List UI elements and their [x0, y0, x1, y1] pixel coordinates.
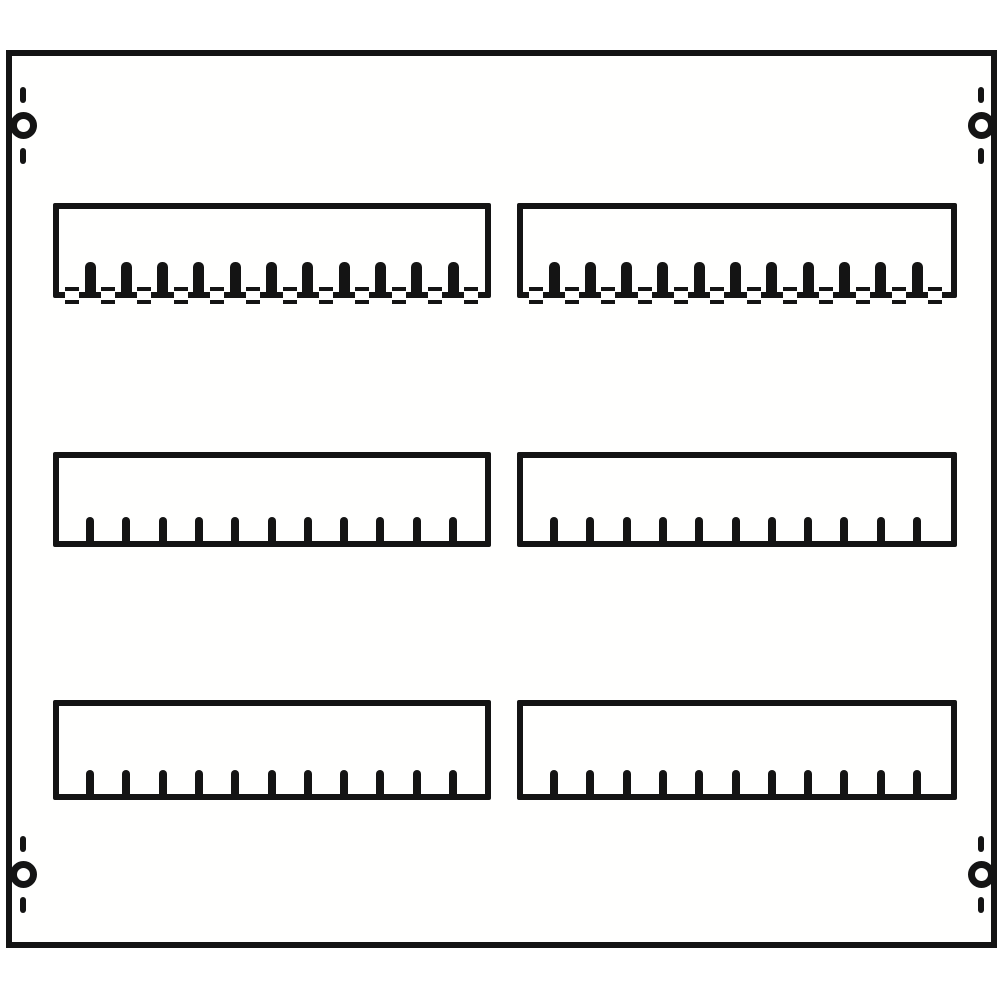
module-tooth	[657, 262, 668, 298]
module-tooth	[86, 517, 94, 547]
module-tooth	[230, 262, 241, 298]
module-tooth	[339, 262, 350, 298]
fixing-clip	[819, 287, 833, 304]
module-tooth	[413, 770, 421, 800]
module-tooth	[804, 517, 812, 547]
fixing-clip	[856, 287, 870, 304]
fixing-clip	[638, 287, 652, 304]
module-slot-r3c2	[517, 700, 957, 800]
hole-alignment-dash-bottom	[20, 897, 26, 913]
hole-alignment-dash-top	[978, 836, 984, 852]
fixing-clip	[428, 287, 442, 304]
module-tooth	[877, 517, 885, 547]
module-tooth	[840, 517, 848, 547]
module-tooth	[768, 517, 776, 547]
module-tooth	[159, 517, 167, 547]
panel-drawing	[0, 0, 1000, 1000]
hole-ring	[10, 112, 37, 139]
module-tooth	[550, 770, 558, 800]
module-tooth	[195, 517, 203, 547]
fixing-clip	[210, 287, 224, 304]
module-tooth	[159, 770, 167, 800]
fixing-clip	[355, 287, 369, 304]
module-tooth	[550, 517, 558, 547]
hole-alignment-dash-bottom	[978, 897, 984, 913]
module-tooth	[449, 770, 457, 800]
module-tooth	[913, 770, 921, 800]
module-tooth	[913, 517, 921, 547]
module-tooth	[766, 262, 777, 298]
module-tooth	[732, 517, 740, 547]
module-tooth	[549, 262, 560, 298]
fixing-clip	[319, 287, 333, 304]
module-tooth	[877, 770, 885, 800]
module-tooth	[448, 262, 459, 298]
hole-alignment-dash-top	[978, 87, 984, 103]
fixing-clip	[137, 287, 151, 304]
module-tooth	[875, 262, 886, 298]
hole-alignment-dash-bottom	[20, 148, 26, 164]
fixing-clip	[710, 287, 724, 304]
module-tooth	[694, 262, 705, 298]
module-tooth	[695, 517, 703, 547]
module-tooth	[411, 262, 422, 298]
module-tooth	[839, 262, 850, 298]
fixing-clip	[246, 287, 260, 304]
hole-alignment-dash-bottom	[978, 148, 984, 164]
module-tooth	[840, 770, 848, 800]
module-slot-r1c2	[517, 203, 957, 298]
module-tooth	[304, 517, 312, 547]
fixing-clip	[565, 287, 579, 304]
module-tooth	[804, 770, 812, 800]
fixing-clip	[392, 287, 406, 304]
module-tooth	[157, 262, 168, 298]
module-tooth	[623, 517, 631, 547]
module-tooth	[304, 770, 312, 800]
module-tooth	[193, 262, 204, 298]
module-tooth	[623, 770, 631, 800]
module-tooth	[912, 262, 923, 298]
module-tooth	[413, 517, 421, 547]
fixing-clip	[783, 287, 797, 304]
module-tooth	[376, 517, 384, 547]
fixing-clip	[529, 287, 543, 304]
fixing-clip	[601, 287, 615, 304]
fixing-clip	[747, 287, 761, 304]
module-tooth	[375, 262, 386, 298]
module-tooth	[86, 770, 94, 800]
hole-alignment-dash-top	[20, 836, 26, 852]
module-tooth	[730, 262, 741, 298]
fixing-clip	[174, 287, 188, 304]
module-tooth	[340, 770, 348, 800]
module-tooth	[586, 770, 594, 800]
fixing-clip	[892, 287, 906, 304]
module-slot-r1c1	[53, 203, 491, 298]
module-tooth	[695, 770, 703, 800]
hole-ring	[10, 861, 37, 888]
fixing-clip	[674, 287, 688, 304]
module-slot-r2c2	[517, 452, 957, 547]
hole-ring	[968, 112, 995, 139]
fixing-clip	[464, 287, 478, 304]
module-tooth	[121, 262, 132, 298]
module-tooth	[268, 770, 276, 800]
module-tooth	[659, 517, 667, 547]
module-tooth	[195, 770, 203, 800]
fixing-clip	[65, 287, 79, 304]
fixing-clip	[101, 287, 115, 304]
module-tooth	[231, 517, 239, 547]
module-tooth	[85, 262, 96, 298]
module-slot-r2c1	[53, 452, 491, 547]
module-tooth	[659, 770, 667, 800]
module-tooth	[268, 517, 276, 547]
module-tooth	[231, 770, 239, 800]
module-tooth	[302, 262, 313, 298]
module-tooth	[340, 517, 348, 547]
module-tooth	[586, 517, 594, 547]
fixing-clip	[283, 287, 297, 304]
module-tooth	[768, 770, 776, 800]
module-tooth	[585, 262, 596, 298]
module-tooth	[376, 770, 384, 800]
module-tooth	[621, 262, 632, 298]
module-tooth	[266, 262, 277, 298]
hole-ring	[968, 861, 995, 888]
module-tooth	[449, 517, 457, 547]
module-tooth	[803, 262, 814, 298]
fixing-clip	[928, 287, 942, 304]
module-slot-r3c1	[53, 700, 491, 800]
hole-alignment-dash-top	[20, 87, 26, 103]
module-tooth	[732, 770, 740, 800]
module-tooth	[122, 517, 130, 547]
module-tooth	[122, 770, 130, 800]
